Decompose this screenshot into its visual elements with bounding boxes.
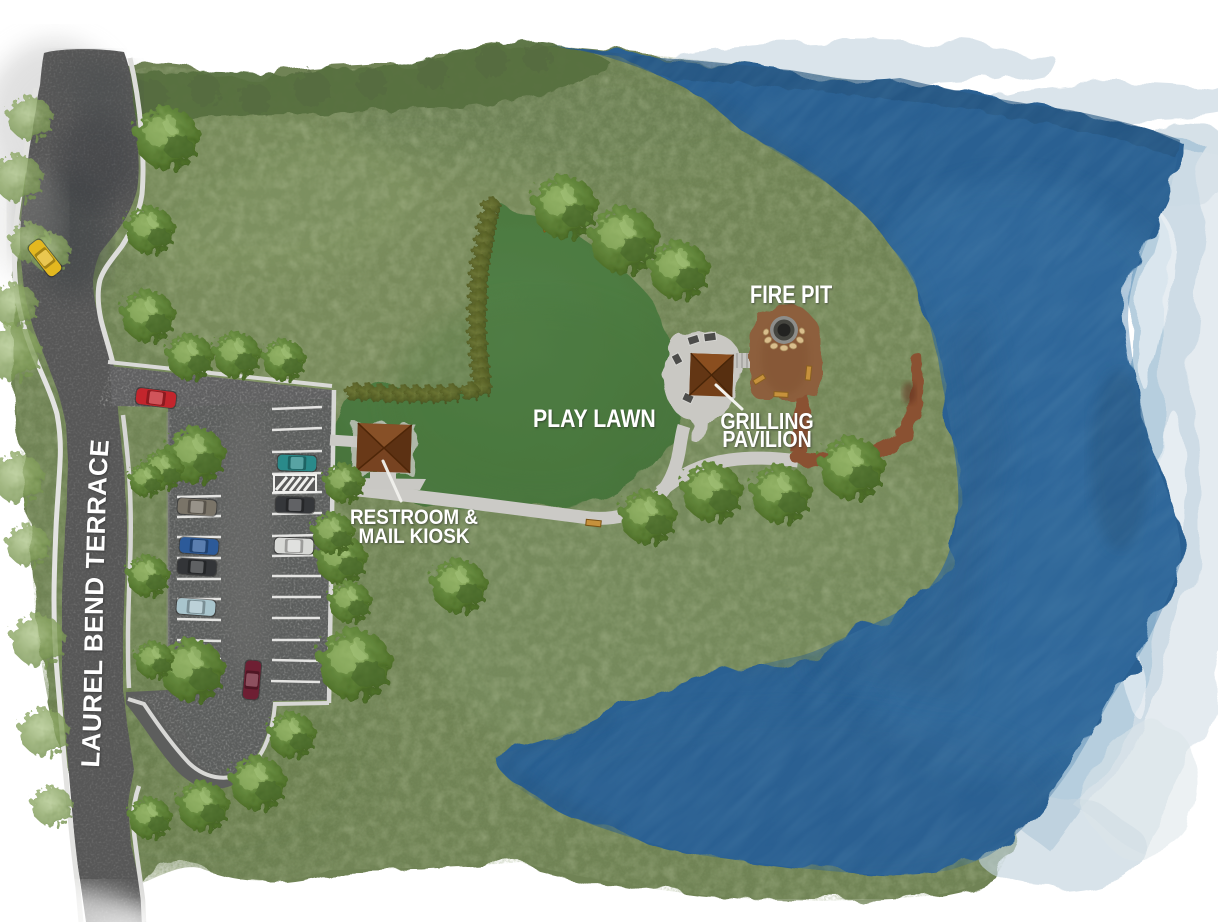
svg-text:FIRE PIT: FIRE PIT — [750, 281, 832, 309]
svg-text:MAIL KIOSK: MAIL KIOSK — [359, 525, 470, 548]
svg-text:PAVILION: PAVILION — [722, 427, 811, 453]
svg-text:PLAY LAWN: PLAY LAWN — [533, 404, 656, 432]
